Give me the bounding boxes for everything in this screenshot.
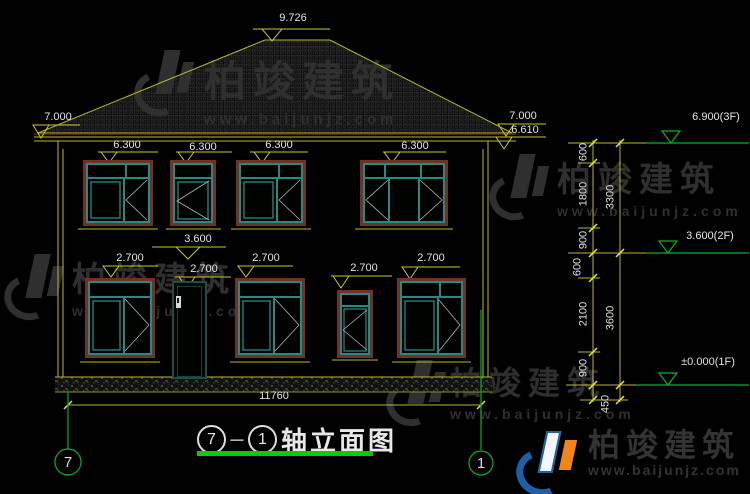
dim-3300: 3300 xyxy=(606,185,617,209)
dim-6300-2: 6.300 xyxy=(189,142,217,153)
title-dash: － xyxy=(228,427,246,453)
window-1f-3 xyxy=(337,290,373,358)
dim-6300-4: 6.300 xyxy=(401,141,429,152)
dim-6300-3: 6.300 xyxy=(265,140,293,151)
dim-3600-mid: 3.600 xyxy=(184,234,212,245)
window-2f-3 xyxy=(236,160,306,226)
dim-2700-4: 2.700 xyxy=(350,263,378,274)
dim-3600: 3600 xyxy=(606,306,617,330)
brand-logo-name: 柏竣建筑 xyxy=(588,428,741,462)
dim-450: 450 xyxy=(601,395,612,413)
entry-door xyxy=(172,281,207,379)
dim-6300-1: 6.300 xyxy=(113,140,141,151)
window-2f-4 xyxy=(360,160,448,226)
brand-logo: 柏竣建筑 www.baijunjz.com xyxy=(520,428,741,488)
brand-logo-icon xyxy=(520,428,582,488)
dim-900-b: 900 xyxy=(579,359,590,377)
dim-2700-1: 2.700 xyxy=(116,253,144,264)
level-2f: 3.600(2F) xyxy=(686,231,734,242)
dim-eave-right-bottom: 6.610 xyxy=(511,125,539,136)
dim-2700-2: 2.700 xyxy=(190,264,218,275)
level-3f: 6.900(3F) xyxy=(692,112,740,123)
dim-900-a: 900 xyxy=(579,231,590,249)
dim-2700-5: 2.700 xyxy=(417,253,445,264)
axis-bubble-1-label: 1 xyxy=(469,451,493,475)
dim-total-width: 11760 xyxy=(259,391,289,402)
level-1f: ±0.000(1F) xyxy=(681,357,735,368)
window-1f-2 xyxy=(235,278,305,358)
drawing-linework xyxy=(0,0,750,494)
dim-600-a: 600 xyxy=(579,143,590,161)
window-1f-4 xyxy=(397,278,466,358)
dim-eave-left: 7.000 xyxy=(44,112,72,123)
dim-600-b: 600 xyxy=(573,258,584,276)
window-1f-1 xyxy=(85,278,155,358)
window-2f-2 xyxy=(170,160,216,226)
dim-1800: 1800 xyxy=(579,182,590,206)
dim-2700-3: 2.700 xyxy=(252,253,280,264)
title-underline xyxy=(197,451,373,456)
title-axis-end-bubble: 1 xyxy=(248,425,277,454)
elevation-drawing: 柏竣建筑 www.baijunjz.com 柏竣建筑 www.baijunjz.… xyxy=(0,0,750,494)
dim-ridge: 9.726 xyxy=(279,13,307,24)
dim-eave-right-top: 7.000 xyxy=(509,111,537,122)
door-handle xyxy=(176,296,181,308)
brand-logo-url: www.baijunjz.com xyxy=(588,462,741,478)
dim-2100: 2100 xyxy=(579,302,590,326)
level-markers-yellow xyxy=(33,29,546,288)
axis-bubble-7-label: 7 xyxy=(55,449,81,475)
title-axis-start-bubble: 7 xyxy=(197,425,226,454)
roof-outline xyxy=(34,40,516,141)
floor-level-markers-green xyxy=(636,131,749,385)
window-2f-1 xyxy=(83,160,153,226)
